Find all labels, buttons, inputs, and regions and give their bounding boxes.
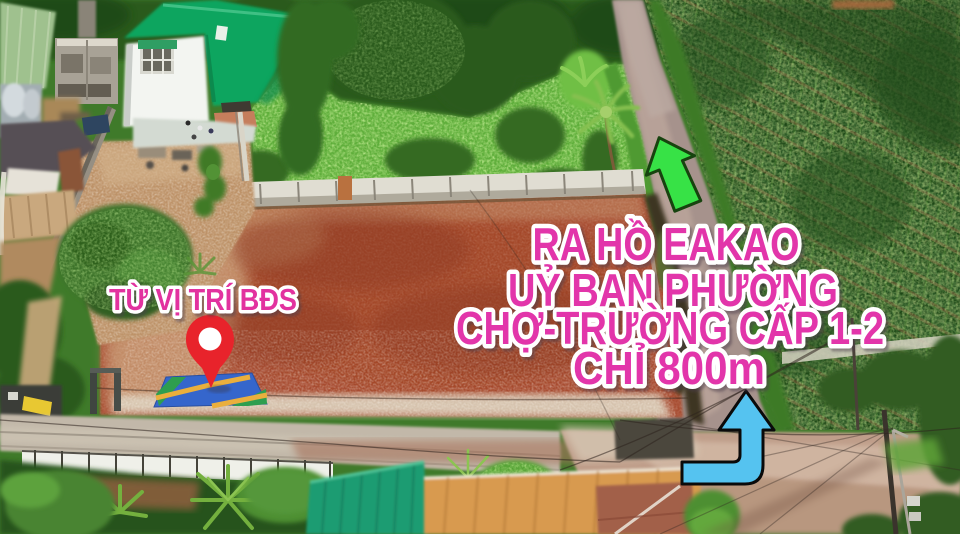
svg-text:CHỈ 800m: CHỈ 800m: [573, 342, 765, 394]
svg-text:TỪ VỊ TRÍ BĐS: TỪ VỊ TRÍ BĐS: [109, 281, 297, 317]
svg-text:RA HỒ EAKAO: RA HỒ EAKAO: [533, 218, 800, 270]
